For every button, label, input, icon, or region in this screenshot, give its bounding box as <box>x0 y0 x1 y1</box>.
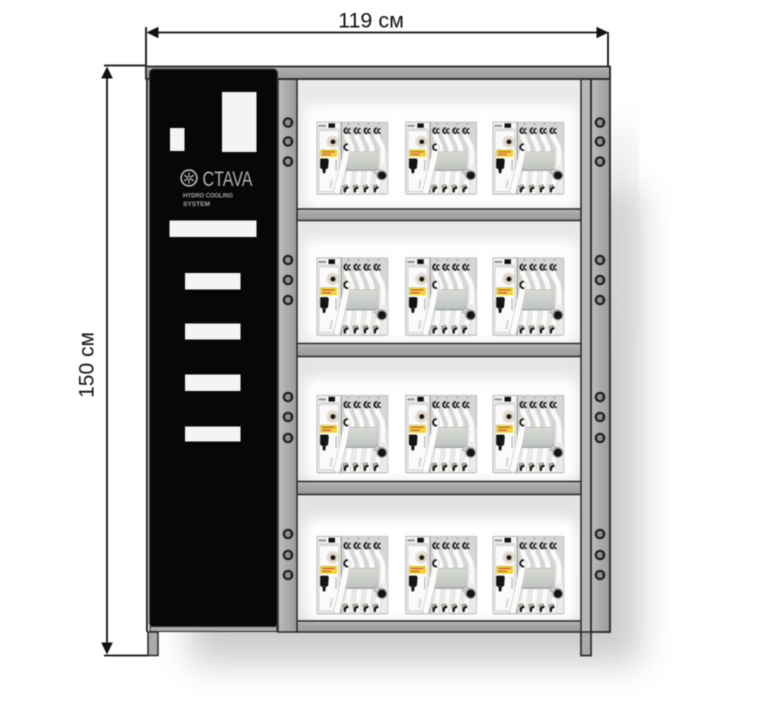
svg-text:CTAVA: CTAVA <box>203 167 253 191</box>
svg-text:150 см: 150 см <box>76 332 99 398</box>
svg-text:SYSTEM: SYSTEM <box>183 201 210 208</box>
svg-text:HYDRO COOLING: HYDRO COOLING <box>183 192 233 199</box>
svg-text:119 см: 119 см <box>338 9 404 33</box>
